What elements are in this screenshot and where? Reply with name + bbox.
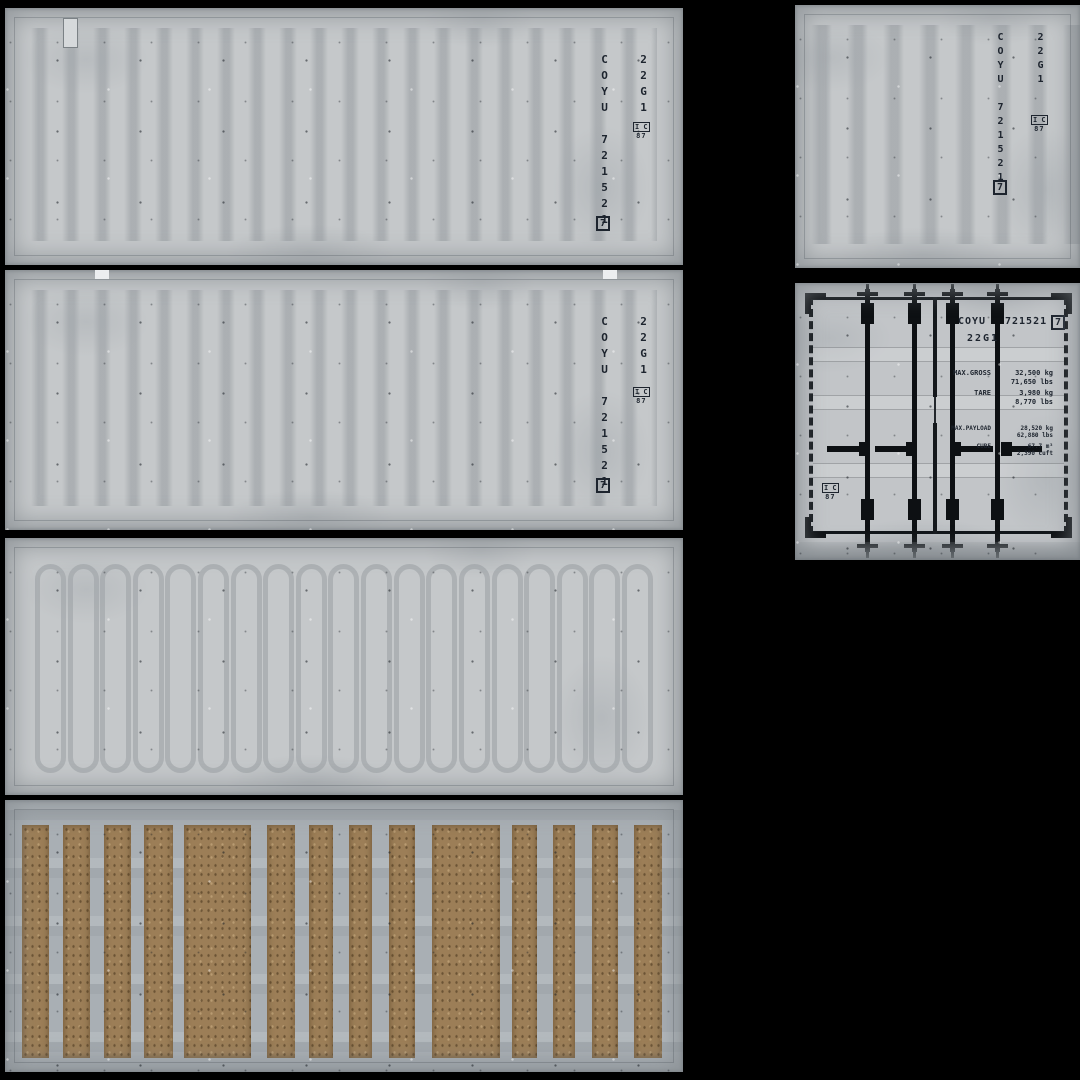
side-panel-short: COYU 721521 7 22G1 I C 87 [795, 5, 1080, 268]
floor-plank [144, 825, 173, 1058]
rod-cam-top [904, 292, 925, 296]
handle-hub [906, 442, 917, 456]
roof-corrugation [459, 564, 490, 773]
floor-plank [349, 825, 372, 1058]
roof-corrugation [524, 564, 555, 773]
spec-label: MAX.PAYLOAD [943, 425, 991, 439]
check-digit-box: 7 [596, 478, 610, 493]
corner-casting [805, 517, 826, 538]
side-panel-long-1: COYU 721521 7 22G1 I C 87 [5, 8, 683, 265]
roof-corrugation [361, 564, 392, 773]
floor-plank [389, 825, 415, 1058]
cam-keeper [861, 303, 874, 324]
floor-plank [22, 825, 49, 1058]
door-owner-code: COYU [958, 316, 986, 327]
corner-casting [1051, 293, 1072, 314]
check-digit-box: 7 [596, 216, 610, 231]
lock-rod [950, 289, 955, 552]
spec-label: TARE [943, 389, 991, 407]
spec-row-tare: TARE 3,980 kg 8,770 lbs [943, 389, 1053, 407]
container-texture-atlas: COYU 721521 7 22G1 I C 87 COYU 721521 7 … [0, 0, 1080, 1080]
classification-emblem: I C 87 [633, 385, 650, 405]
corrugation-ribs [31, 28, 657, 241]
door-frame [809, 297, 1068, 534]
roof-corrugation [133, 564, 164, 773]
cam-keeper [908, 499, 921, 520]
roof-corrugation [426, 564, 457, 773]
rod-tip [913, 284, 916, 291]
classification-emblem: I C 87 [1031, 113, 1048, 133]
rod-cam-top [857, 292, 878, 296]
door-panel: COYU 721521 7 22G1 MAX.GROSS 32,500 kg 7… [795, 283, 1080, 560]
spec-metric: 3,980 kg [999, 389, 1053, 398]
roof-corrugations [35, 564, 653, 773]
rod-tip [996, 284, 999, 291]
spec-imperial: 8,770 lbs [999, 398, 1053, 407]
door-handle [875, 446, 915, 452]
seam-notch [603, 270, 617, 279]
spec-metric: 28,520 kg [999, 425, 1053, 432]
classification-emblem: I C 87 [822, 481, 839, 501]
lock-rod [865, 289, 870, 552]
emblem-box: I C [633, 122, 650, 132]
roof-corrugation [589, 564, 620, 773]
floor-plank [63, 825, 90, 1058]
floor-plank [634, 825, 662, 1058]
iso-code-vertical: 22G1 [1035, 32, 1046, 88]
floor-plank-wide [432, 825, 500, 1058]
roof-corrugation [100, 564, 131, 773]
container-id-vertical: COYU 721521 [598, 53, 611, 229]
roof-corrugation [165, 564, 196, 773]
roof-corrugation [198, 564, 229, 773]
iso-code-vertical: 22G1 [637, 315, 650, 379]
corrugation-ribs [31, 290, 657, 506]
roof-corrugation [394, 564, 425, 773]
emblem-box: I C [1031, 115, 1048, 125]
emblem-number: 87 [633, 397, 650, 405]
spec-row-cube: CUBE 67.7 m³ 2,390 cuft [943, 443, 1053, 457]
roof-panel [5, 538, 683, 795]
roof-corrugation [492, 564, 523, 773]
corner-casting [805, 293, 826, 314]
emblem-number: 87 [822, 493, 839, 501]
spec-label: MAX.GROSS [943, 369, 991, 387]
door-handle [827, 446, 868, 452]
spec-imperial: 2,390 cuft [999, 450, 1053, 457]
door-center-seam [933, 297, 937, 397]
floor-plank [592, 825, 618, 1058]
cam-keeper [991, 499, 1004, 520]
door-center-seam [934, 397, 936, 423]
emblem-box: I C [822, 483, 839, 493]
roof-corrugation [231, 564, 262, 773]
roof-corrugation [263, 564, 294, 773]
roof-corrugation [622, 564, 653, 773]
rod-cam-top [942, 292, 963, 296]
rod-cam-top [987, 292, 1008, 296]
classification-emblem: I C 87 [633, 120, 650, 140]
floor-plank [104, 825, 131, 1058]
floor-panel [5, 800, 683, 1072]
roof-corrugation [557, 564, 588, 773]
container-id-vertical: COYU 721521 [598, 315, 611, 491]
corner-casting [1051, 517, 1072, 538]
handle-hub [859, 442, 870, 456]
floor-plank [553, 825, 575, 1058]
spec-metric: 67.7 m³ [999, 443, 1053, 450]
floor-plank [309, 825, 333, 1058]
cam-keeper [991, 303, 1004, 324]
floor-plank-wide [184, 825, 251, 1058]
vent-plate [63, 18, 78, 48]
cam-keeper [946, 499, 959, 520]
emblem-box: I C [633, 387, 650, 397]
roof-corrugation [68, 564, 99, 773]
rod-tip [951, 284, 954, 291]
spec-imperial: 62,880 lbs [999, 432, 1053, 439]
spec-label: CUBE [943, 443, 991, 457]
door-check-digit-box: 7 [1051, 315, 1065, 330]
emblem-number: 87 [633, 132, 650, 140]
container-id-vertical: COYU 721521 [995, 32, 1006, 186]
spec-row-max-payload: MAX.PAYLOAD 28,520 kg 62,880 lbs [943, 425, 1053, 439]
weathered-bottom-strip [795, 542, 1080, 560]
lock-rod [912, 289, 917, 552]
check-digit-box: 7 [993, 180, 1007, 195]
cam-keeper [861, 499, 874, 520]
seam-notch [95, 270, 109, 279]
spec-imperial: 71,650 lbs [999, 378, 1053, 387]
door-serial-number: 721521 [1005, 316, 1047, 327]
iso-code-vertical: 22G1 [637, 53, 650, 117]
door-iso-code: 22G1 [967, 333, 999, 344]
floor-plank [267, 825, 295, 1058]
rod-tip [866, 284, 869, 291]
lock-rod [995, 289, 1000, 552]
floor-plank [512, 825, 537, 1058]
cam-keeper [908, 303, 921, 324]
roof-corrugation [35, 564, 66, 773]
spec-metric: 32,500 kg [999, 369, 1053, 378]
emblem-number: 87 [1031, 125, 1048, 133]
side-panel-long-2: COYU 721521 7 22G1 I C 87 [5, 270, 683, 530]
roof-corrugation [328, 564, 359, 773]
spec-row-max-gross: MAX.GROSS 32,500 kg 71,650 lbs [943, 369, 1053, 387]
door-center-seam [933, 423, 937, 534]
roof-corrugation [296, 564, 327, 773]
